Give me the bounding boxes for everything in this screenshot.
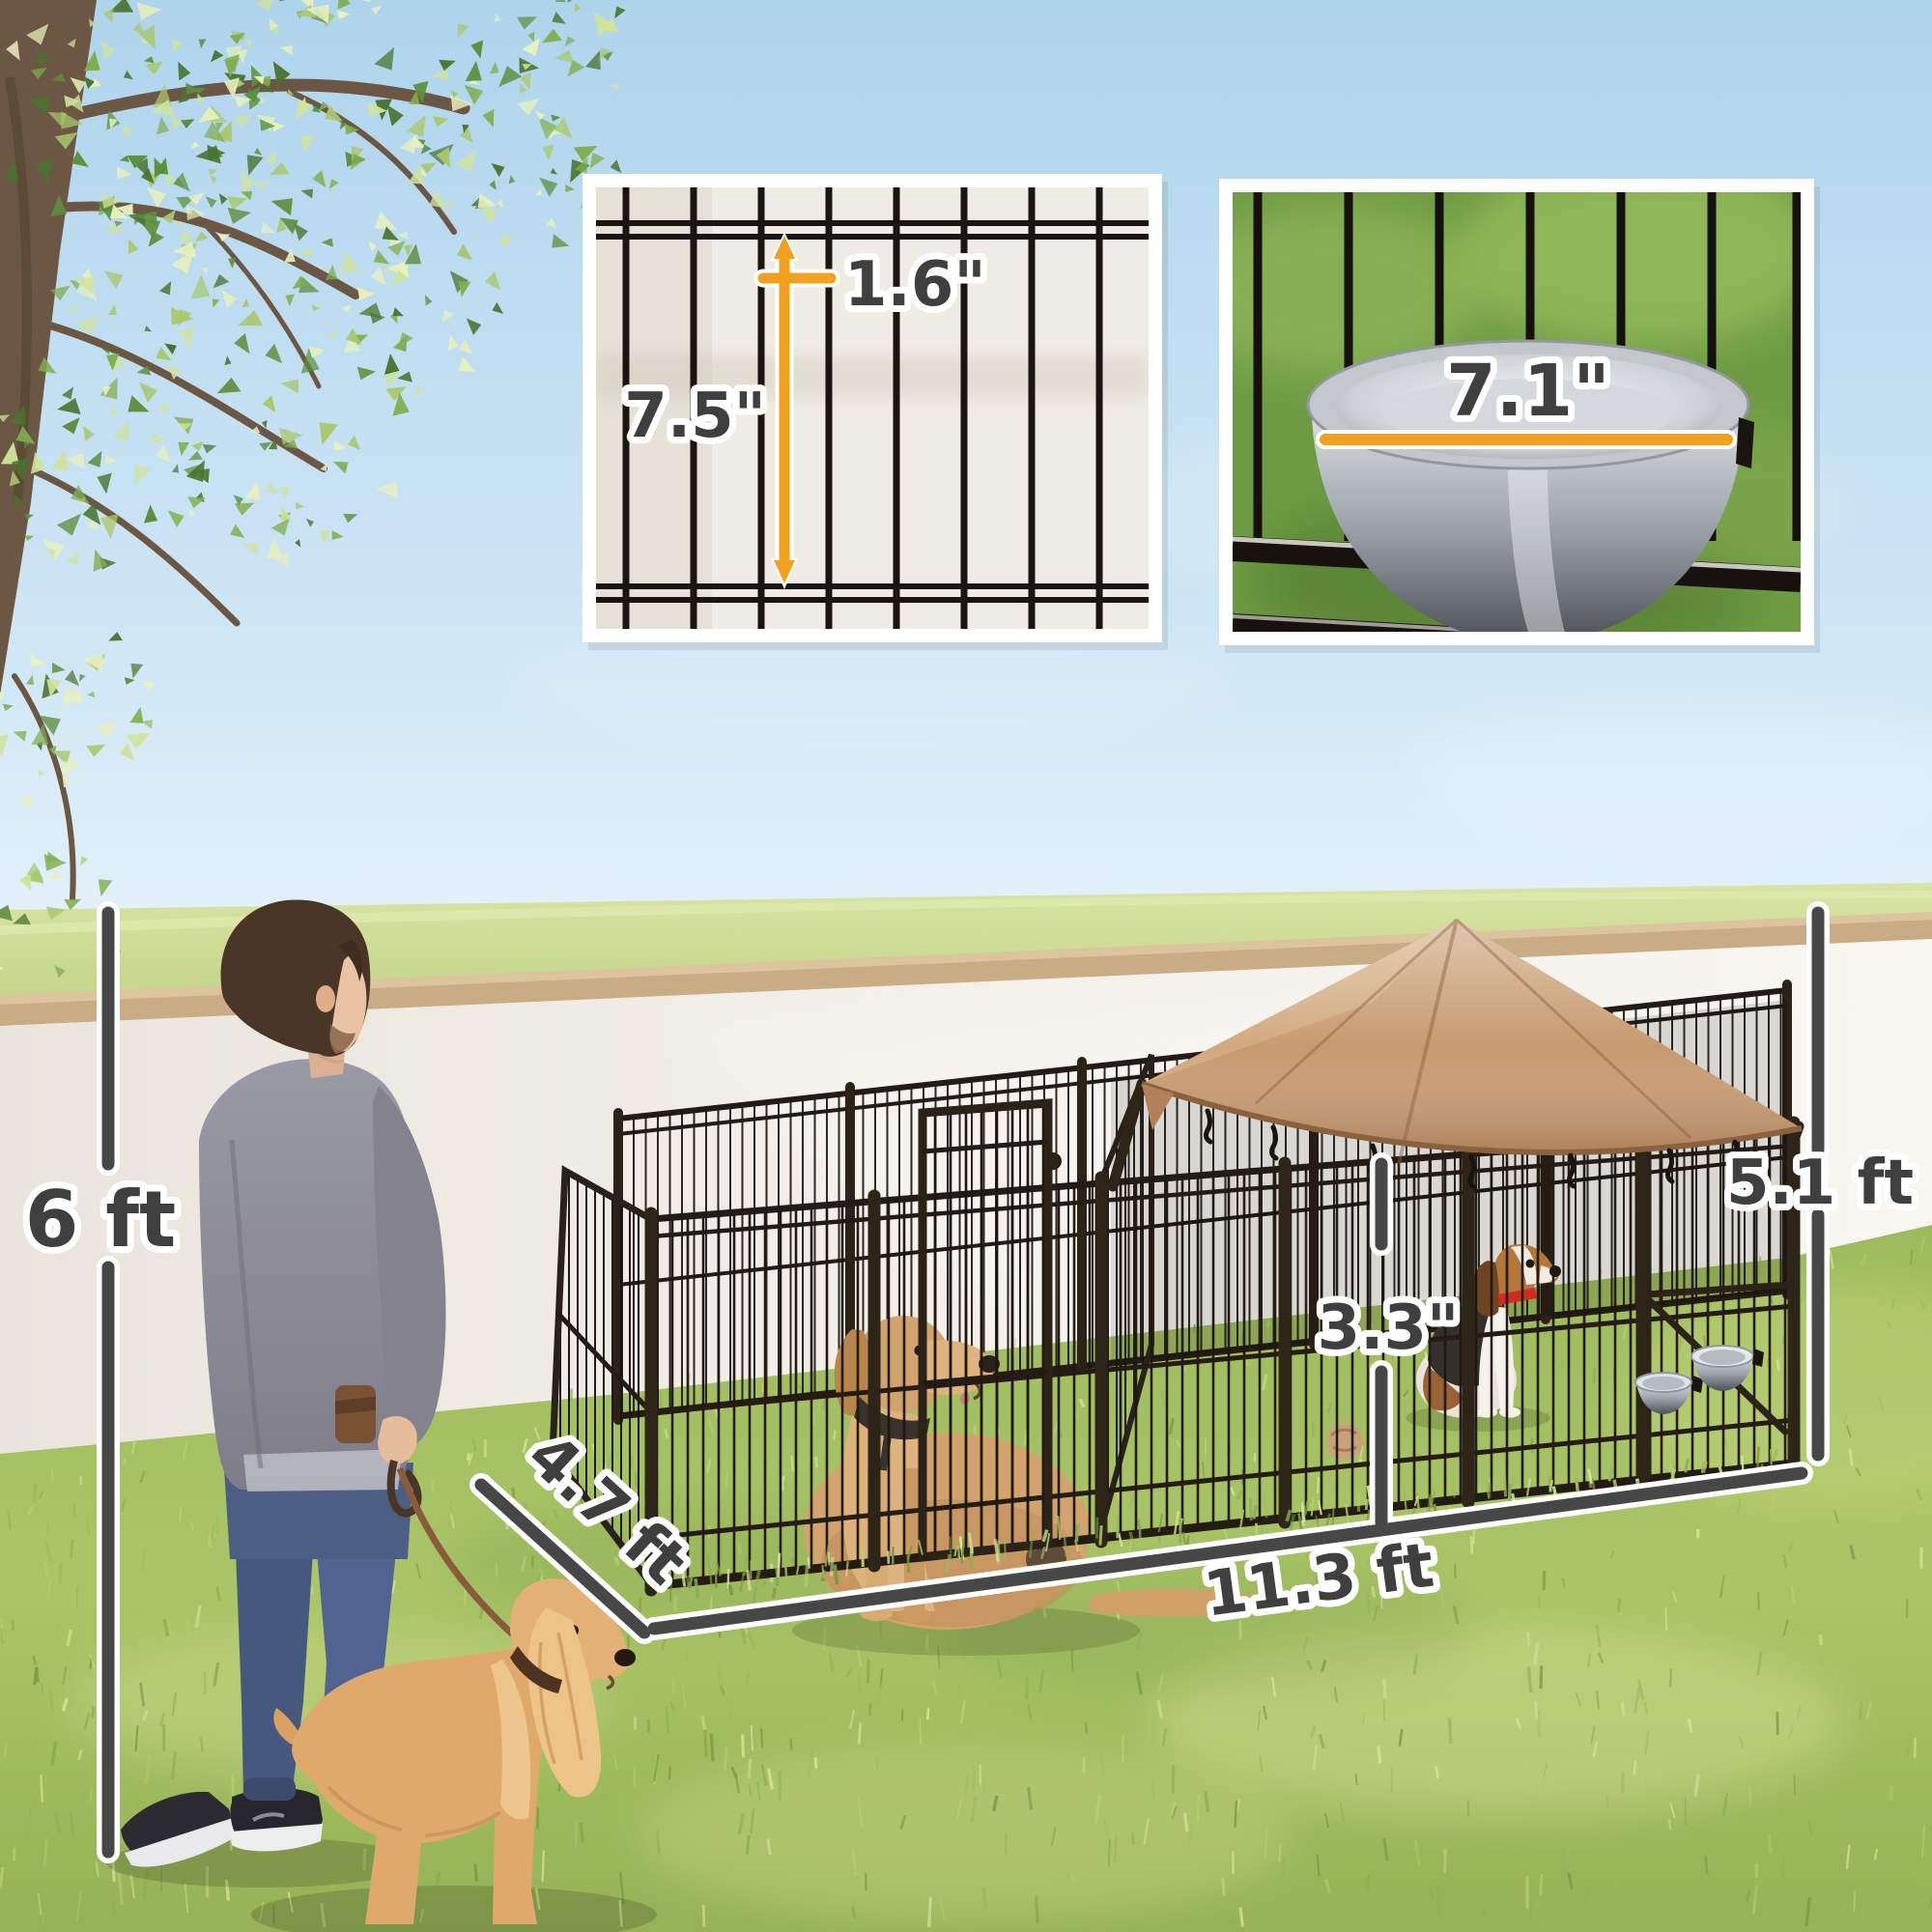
dimension-label-wire-gap: 3.3" <box>1318 1293 1460 1364</box>
door-latch <box>1044 1152 1062 1170</box>
inset-label-bowl-diameter: 7.1" <box>1446 350 1610 433</box>
inset-wire-spacing: 1.6" 7.5" <box>582 174 1168 650</box>
inset-bowl: 7.1" <box>1179 155 1874 667</box>
kennel-door-panel <box>923 1103 1062 1557</box>
dimension-label-roof-height: 5.1 ft <box>1726 1148 1914 1219</box>
dimension-label-fence-height: 6 ft <box>25 1175 177 1264</box>
inset-label-wire-height: 7.5" <box>624 381 766 452</box>
product-scene: 6 ft 5.1 ft 3.3" 4.7 ft 11.3 ft <box>0 0 1932 1932</box>
scene-canvas: 6 ft 5.1 ft 3.3" 4.7 ft 11.3 ft <box>0 0 1932 1932</box>
inset-label-wire-spacing: 1.6" <box>844 249 986 321</box>
waist-pouch <box>335 1385 376 1443</box>
